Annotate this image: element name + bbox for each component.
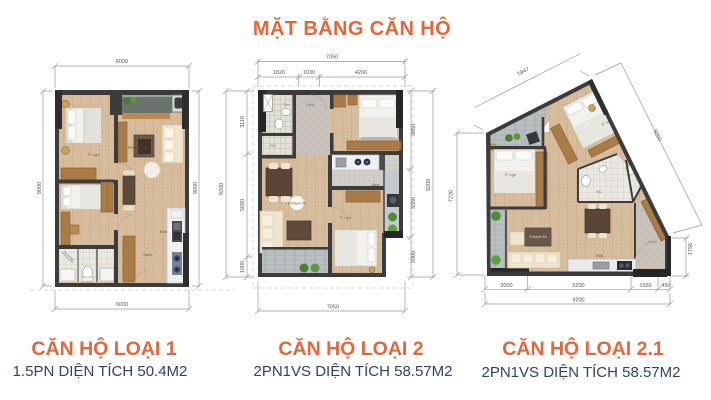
svg-text:2PN1VS DIỆN TÍCH 58.57M2: 2PN1VS DIỆN TÍCH 58.57M2 — [254, 363, 453, 380]
svg-text:1000: 1000 — [240, 261, 246, 273]
svg-text:4200: 4200 — [355, 70, 367, 76]
svg-text:P. ngủ: P. ngủ — [505, 172, 516, 177]
svg-text:Bếp: Bếp — [160, 229, 168, 234]
svg-text:2000: 2000 — [411, 251, 417, 263]
svg-text:9200: 9200 — [572, 298, 584, 304]
svg-text:7226: 7226 — [449, 190, 455, 202]
svg-text:9000: 9000 — [37, 182, 43, 194]
svg-text:P. ngủ: P. ngủ — [340, 215, 351, 220]
svg-text:P. ngủ: P. ngủ — [88, 152, 99, 157]
svg-text:7050: 7050 — [326, 55, 338, 61]
svg-text:Tắm: Tắm — [283, 102, 290, 107]
svg-text:3110: 3110 — [240, 116, 246, 128]
svg-text:CĂN HỘ LOẠI 1: CĂN HỘ LOẠI 1 — [31, 336, 176, 360]
svg-text:450: 450 — [661, 283, 670, 289]
svg-text:3850: 3850 — [411, 124, 417, 136]
svg-text:2PN1VS DIỆN TÍCH 58.57M2: 2PN1VS DIỆN TÍCH 58.57M2 — [482, 364, 681, 381]
svg-text:5947: 5947 — [517, 67, 531, 78]
svg-text:P.Khách+Ăn: P.Khách+Ăn — [529, 235, 547, 239]
svg-text:1820: 1820 — [273, 70, 285, 76]
svg-text:WC: WC — [270, 144, 276, 148]
svg-text:1550: 1550 — [639, 283, 651, 289]
svg-text:9000: 9000 — [193, 182, 199, 194]
svg-text:MẶT BẰNG CĂN HỘ: MẶT BẰNG CĂN HỘ — [253, 16, 451, 40]
svg-text:1030: 1030 — [303, 70, 315, 76]
svg-text:3350: 3350 — [411, 197, 417, 209]
svg-text:9200: 9200 — [651, 129, 662, 143]
svg-text:WC: WC — [596, 190, 602, 194]
svg-text:CĂN HỘ LOẠI 2: CĂN HỘ LOẠI 2 — [278, 336, 423, 360]
svg-text:CĂN HỘ LOẠI 2.1: CĂN HỘ LOẠI 2.1 — [502, 336, 664, 360]
svg-text:P.Khách + Ăn: P.Khách + Ăn — [128, 146, 149, 150]
svg-text:9200: 9200 — [219, 183, 225, 195]
svg-text:Sảnh: Sảnh — [143, 252, 152, 257]
svg-text:Sảnh: Sảnh — [306, 103, 314, 107]
svg-text:2000: 2000 — [500, 283, 512, 289]
svg-text:6000: 6000 — [116, 302, 128, 308]
svg-text:6000: 6000 — [116, 59, 128, 65]
svg-text:1.5PN DIỆN TÍCH 50.4M2: 1.5PN DIỆN TÍCH 50.4M2 — [13, 363, 188, 380]
svg-text:Bếp: Bếp — [596, 253, 604, 258]
svg-text:Bếp: Bếp — [372, 182, 380, 187]
svg-text:9200: 9200 — [426, 179, 432, 191]
svg-text:P.Khách+Ăn: P.Khách+Ăn — [288, 202, 306, 206]
svg-text:1756: 1756 — [688, 243, 694, 255]
svg-text:5090: 5090 — [240, 199, 246, 211]
svg-text:7050: 7050 — [327, 305, 339, 311]
svg-text:5200: 5200 — [572, 283, 584, 289]
